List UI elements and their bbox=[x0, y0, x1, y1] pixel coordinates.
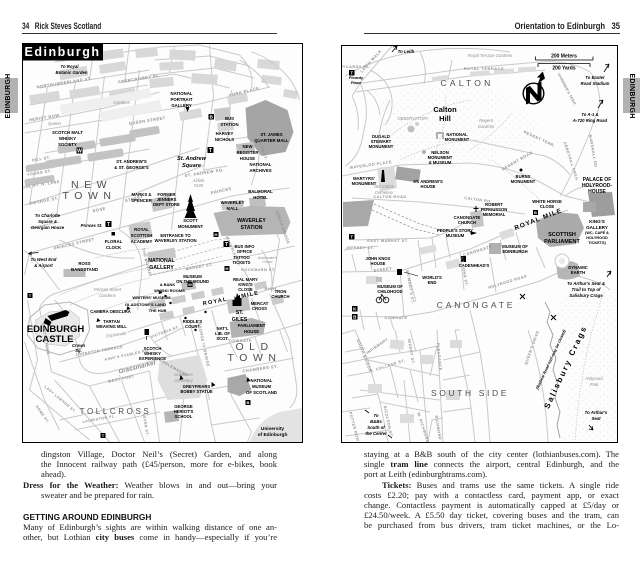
svg-text:Salisbury Crags: Salisbury Crags bbox=[569, 293, 603, 298]
svg-text:SOCIETY: SOCIETY bbox=[58, 142, 77, 147]
svg-text:200 Yards: 200 Yards bbox=[552, 66, 575, 72]
svg-text:B: B bbox=[247, 400, 250, 405]
svg-text:Square: Square bbox=[182, 163, 201, 169]
svg-text:Gardens: Gardens bbox=[478, 124, 495, 129]
svg-text:NEW: NEW bbox=[242, 144, 253, 149]
svg-text:Park: Park bbox=[590, 382, 600, 387]
svg-text:WHISKI ROOMS: WHISKI ROOMS bbox=[154, 288, 185, 293]
svg-text:EAST MARKET ST.: EAST MARKET ST. bbox=[367, 239, 408, 243]
svg-text:ST. ANDREW'S: ST. ANDREW'S bbox=[116, 159, 147, 164]
svg-text:A BANK: A BANK bbox=[160, 282, 176, 287]
svg-text:B&Bs: B&Bs bbox=[370, 419, 382, 424]
svg-text:MONUMENT: MONUMENT bbox=[178, 224, 204, 229]
svg-text:SCOTTISH: SCOTTISH bbox=[548, 232, 576, 238]
svg-text:Royal Terrace Gardens: Royal Terrace Gardens bbox=[468, 53, 513, 58]
svg-text:Princes St.: Princes St. bbox=[81, 223, 103, 228]
svg-text:CHILDHOOD: CHILDHOOD bbox=[377, 289, 402, 294]
svg-text:MONUMENT: MONUMENT bbox=[445, 137, 470, 142]
svg-text:To: To bbox=[373, 413, 378, 418]
svg-text:SCOTCH MALT: SCOTCH MALT bbox=[52, 130, 83, 135]
svg-text:COWGATE: COWGATE bbox=[229, 339, 252, 343]
svg-text:NICHOLS: NICHOLS bbox=[215, 137, 234, 142]
svg-text:CANONGATE: CANONGATE bbox=[437, 300, 515, 310]
svg-text:EARTH: EARTH bbox=[571, 270, 585, 275]
svg-text:MONUMENT: MONUMENT bbox=[369, 144, 394, 149]
svg-text:KING'S: KING'S bbox=[589, 219, 605, 224]
svg-text:HOUSE: HOUSE bbox=[421, 184, 436, 189]
svg-text:CALTON: CALTON bbox=[441, 78, 494, 88]
svg-text:ROYAL TERRACE: ROYAL TERRACE bbox=[464, 66, 505, 71]
svg-text:HOLYROOD: HOLYROOD bbox=[586, 236, 608, 240]
svg-text:ARCHIVES: ARCHIVES bbox=[249, 168, 271, 173]
svg-text:Edinburgh: Edinburgh bbox=[25, 45, 101, 59]
svg-text:MEMORIAL: MEMORIAL bbox=[483, 212, 506, 217]
svg-text:ACADEMY: ACADEMY bbox=[131, 239, 153, 244]
svg-text:Trail to Top of: Trail to Top of bbox=[571, 287, 601, 292]
svg-text:CASTLE: CASTLE bbox=[36, 334, 74, 345]
svg-text:Hill: Hill bbox=[439, 114, 451, 123]
svg-text:FLORAL: FLORAL bbox=[105, 239, 123, 244]
svg-text:To Royal: To Royal bbox=[61, 64, 80, 69]
svg-text:To West End: To West End bbox=[31, 257, 57, 262]
svg-text:MUSEUM: MUSEUM bbox=[252, 384, 272, 389]
svg-text:Cemetery: Cemetery bbox=[174, 378, 193, 383]
svg-text:Holyrood: Holyrood bbox=[585, 376, 603, 381]
svg-text:University: University bbox=[261, 426, 285, 432]
svg-text:HOUSE: HOUSE bbox=[240, 156, 255, 161]
svg-text:SCHOOL: SCHOOL bbox=[175, 414, 193, 419]
svg-text:TOWN: TOWN bbox=[228, 352, 282, 364]
svg-text:the Center: the Center bbox=[365, 431, 387, 436]
svg-text:COWGATE: COWGATE bbox=[384, 316, 407, 320]
svg-text:WHISKY: WHISKY bbox=[59, 136, 76, 141]
svg-text:COCKBURN ST.: COCKBURN ST. bbox=[241, 268, 276, 272]
svg-text:H: H bbox=[215, 232, 218, 237]
svg-text:To Arthur's: To Arthur's bbox=[585, 410, 608, 415]
svg-text:Seat: Seat bbox=[591, 416, 601, 421]
svg-text:Calton: Calton bbox=[433, 105, 457, 114]
svg-text:Regent: Regent bbox=[479, 118, 494, 123]
svg-text:Gardens: Gardens bbox=[113, 100, 130, 105]
svg-text:SCOT.: SCOT. bbox=[216, 336, 228, 341]
svg-text:To A-1 &: To A-1 & bbox=[581, 112, 598, 117]
svg-text:Princes Street: Princes Street bbox=[94, 287, 122, 292]
svg-text:of Edinburgh: of Edinburgh bbox=[258, 432, 288, 438]
svg-text:Place: Place bbox=[351, 80, 362, 85]
svg-text:& Airport: & Airport bbox=[34, 263, 53, 268]
svg-text:T: T bbox=[209, 148, 212, 154]
svg-text:PARLIAMENT: PARLIAMENT bbox=[238, 323, 266, 328]
svg-text:SCOTT: SCOTT bbox=[183, 218, 198, 223]
svg-text:DEPT STORE: DEPT STORE bbox=[153, 202, 180, 207]
svg-text:Georgian House: Georgian House bbox=[31, 225, 65, 230]
svg-text:CHURCH: CHURCH bbox=[458, 220, 476, 225]
svg-text:Old Calton: Old Calton bbox=[374, 184, 395, 189]
svg-text:END: END bbox=[428, 280, 437, 285]
svg-text:To Leith: To Leith bbox=[398, 49, 415, 54]
svg-text:WAVERLEY STATION: WAVERLEY STATION bbox=[154, 238, 196, 243]
svg-text:Road Stadium: Road Stadium bbox=[581, 81, 610, 86]
svg-text:A-720 Ring Road: A-720 Ring Road bbox=[572, 118, 608, 123]
svg-text:BANDSTAND: BANDSTAND bbox=[71, 267, 98, 272]
svg-text:STATION: STATION bbox=[241, 225, 263, 231]
svg-text:MUSEUM: MUSEUM bbox=[446, 233, 465, 238]
svg-text:NATIONAL: NATIONAL bbox=[251, 378, 273, 383]
svg-text:HOUSE: HOUSE bbox=[588, 189, 606, 195]
svg-text:(WC, CAFÉ &: (WC, CAFÉ & bbox=[585, 230, 609, 235]
svg-text:CAMERA OBSCURA: CAMERA OBSCURA bbox=[90, 309, 131, 314]
svg-text:JEFFREY ST.: JEFFREY ST. bbox=[345, 246, 374, 250]
svg-text:GALLERY: GALLERY bbox=[149, 265, 174, 271]
svg-text:SOUTH SIDE: SOUTH SIDE bbox=[431, 388, 509, 398]
svg-text:STATION: STATION bbox=[220, 122, 238, 127]
svg-text:OBSERVATORY: OBSERVATORY bbox=[397, 116, 429, 121]
svg-text:To Arthur's Seat &: To Arthur's Seat & bbox=[567, 281, 605, 286]
svg-text:CLOCK: CLOCK bbox=[106, 245, 122, 250]
svg-text:PORTRAIT: PORTRAIT bbox=[171, 97, 193, 102]
svg-text:PARLIAMENT: PARLIAMENT bbox=[544, 239, 580, 245]
svg-text:OFFICE: OFFICE bbox=[237, 249, 253, 254]
svg-text:Close: Close bbox=[262, 259, 273, 264]
svg-text:NATIONAL: NATIONAL bbox=[250, 162, 272, 167]
svg-text:WAVERLEY: WAVERLEY bbox=[221, 200, 245, 205]
svg-text:NATIONAL: NATIONAL bbox=[171, 91, 193, 96]
svg-text:OF SCOTLAND: OF SCOTLAND bbox=[246, 390, 277, 395]
svg-text:TOWN: TOWN bbox=[63, 190, 117, 202]
svg-text:Square &: Square & bbox=[38, 219, 57, 224]
svg-text:CLOSE: CLOSE bbox=[540, 204, 555, 209]
svg-text:PICARDY PL.: PICARDY PL. bbox=[341, 65, 370, 69]
svg-text:BALMORAL: BALMORAL bbox=[248, 189, 273, 194]
svg-text:EDINBURGH: EDINBURGH bbox=[502, 249, 527, 254]
svg-text:HARVEY: HARVEY bbox=[216, 131, 234, 136]
svg-text:ROYAL: ROYAL bbox=[134, 227, 149, 232]
svg-text:REGISTER: REGISTER bbox=[237, 150, 260, 155]
svg-text:& MUSEUM: & MUSEUM bbox=[429, 160, 452, 165]
svg-text:T: T bbox=[107, 222, 110, 228]
svg-text:W: W bbox=[77, 149, 82, 155]
svg-text:Gardens: Gardens bbox=[99, 293, 116, 298]
svg-text:To Charlotte: To Charlotte bbox=[35, 213, 61, 218]
svg-text:St. Andrew: St. Andrew bbox=[177, 156, 207, 162]
svg-text:GLADSTONE'S LAND: GLADSTONE'S LAND bbox=[125, 302, 166, 307]
svg-text:SPENCER: SPENCER bbox=[131, 198, 153, 203]
svg-text:To Easter: To Easter bbox=[585, 75, 605, 80]
svg-text:200 Meters: 200 Meters bbox=[551, 54, 577, 60]
svg-text:BUS: BUS bbox=[225, 116, 234, 121]
svg-text:H: H bbox=[226, 266, 229, 271]
svg-text:GALLERY: GALLERY bbox=[586, 225, 608, 230]
svg-text:CHURCH: CHURCH bbox=[271, 294, 289, 299]
svg-text:& ST. GEORGE'S: & ST. GEORGE'S bbox=[114, 165, 149, 170]
svg-text:ST. JAMES: ST. JAMES bbox=[260, 132, 282, 137]
svg-text:WEAVING MILL: WEAVING MILL bbox=[96, 324, 127, 329]
svg-text:#100: #100 bbox=[194, 183, 204, 188]
svg-text:SCOTTISH: SCOTTISH bbox=[131, 233, 153, 238]
svg-text:HOUSE: HOUSE bbox=[371, 261, 386, 266]
svg-text:TICKETS): TICKETS) bbox=[588, 241, 606, 245]
svg-text:B: B bbox=[534, 210, 537, 215]
svg-text:NATIONAL: NATIONAL bbox=[148, 258, 175, 264]
svg-text:CALTON ROAD: CALTON ROAD bbox=[373, 195, 406, 199]
svg-text:CROSS: CROSS bbox=[252, 306, 267, 311]
svg-text:HOTEL: HOTEL bbox=[253, 195, 268, 200]
svg-text:ROSS: ROSS bbox=[78, 261, 90, 266]
svg-text:South of: South of bbox=[367, 425, 385, 430]
svg-text:BOBBY STATUE: BOBBY STATUE bbox=[180, 389, 213, 394]
svg-text:Queen: Queen bbox=[48, 121, 62, 126]
svg-text:ST.: ST. bbox=[236, 310, 244, 316]
svg-text:MARKS &: MARKS & bbox=[131, 192, 151, 197]
svg-text:T: T bbox=[350, 235, 353, 240]
svg-text:MONUMENT: MONUMENT bbox=[511, 179, 536, 184]
svg-text:MALL: MALL bbox=[227, 206, 239, 211]
svg-text:HOUSE: HOUSE bbox=[244, 329, 259, 334]
svg-text:WAVERLEY: WAVERLEY bbox=[237, 218, 266, 224]
svg-text:Botanic Garden: Botanic Garden bbox=[56, 70, 88, 75]
svg-text:THE HUB: THE HUB bbox=[149, 308, 167, 313]
